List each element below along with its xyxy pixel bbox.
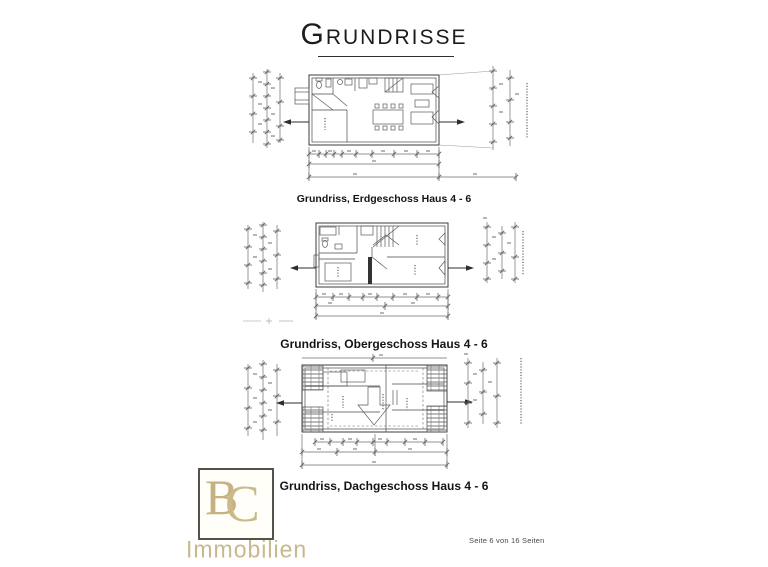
dimension-chains-bottom <box>307 147 518 181</box>
roof-hatch <box>427 365 447 391</box>
plan-walls <box>295 75 439 145</box>
logo: B C Immobilien <box>186 466 306 562</box>
plan-walls <box>314 223 448 287</box>
floorplan-erdgeschoss-drawing <box>235 58 540 190</box>
dimension-chains-bottom <box>314 289 450 320</box>
window-symbol <box>439 261 445 275</box>
dimension-column-right <box>483 218 519 283</box>
caption-erdgeschoss: Grundriss, Erdgeschoss Haus 4 - 6 <box>0 193 768 205</box>
logo-company-name: Immobilien <box>186 535 306 563</box>
document-page: Grundrisse <box>0 0 768 567</box>
entrance-arrows <box>290 265 474 270</box>
logo-letter-c: C <box>225 479 260 531</box>
floorplan-dachgeschoss-drawing <box>235 350 535 475</box>
logo-box: B C <box>198 468 274 540</box>
plan-walls <box>302 365 447 432</box>
dimension-chains-bottom <box>300 434 449 469</box>
dimension-line-top <box>302 354 447 362</box>
dimension-column-left <box>249 69 284 148</box>
roof-hatch <box>302 407 323 432</box>
page-number-text: Seite 6 von 16 Seiten <box>469 536 545 545</box>
entrance-arrows <box>276 399 473 405</box>
page-title: Grundrisse <box>0 18 768 52</box>
title-underline <box>318 56 454 57</box>
dimension-column-left <box>244 360 281 440</box>
caption-obergeschoss: Grundriss, Obergeschoss Haus 4 - 6 <box>0 337 768 351</box>
window-symbol <box>439 233 445 245</box>
dimension-column-right <box>439 66 519 150</box>
caption-dachgeschoss: Grundriss, Dachgeschoss Haus 4 - 6 <box>0 479 768 493</box>
floorplan-obergeschoss-drawing <box>235 213 535 333</box>
dimension-column-right <box>464 354 501 428</box>
dimension-column-left <box>243 222 293 324</box>
stair-direction-arrow <box>358 387 390 425</box>
